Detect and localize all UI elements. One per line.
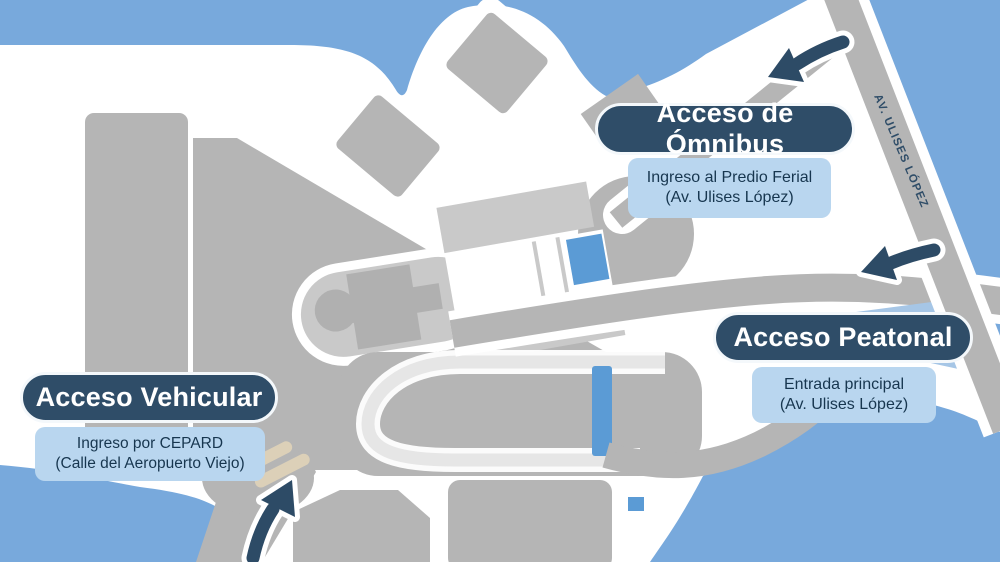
small-blue-bottom — [628, 497, 644, 511]
vehicular-info-line2: (Calle del Aeropuerto Viejo) — [55, 454, 244, 474]
omnibus-info-line1: Ingreso al Predio Ferial — [647, 168, 812, 188]
peatonal-info-line1: Entrada principal — [784, 375, 904, 395]
omnibus-title-pill: Acceso de Ómnibus — [595, 103, 855, 155]
access-map-infographic: AV. ULISES LÓPEZ Acceso de Ómnibus Ingre… — [0, 0, 1000, 562]
peatonal-info-line2: (Av. Ulises López) — [780, 395, 908, 415]
peatonal-title-pill: Acceso Peatonal — [713, 312, 973, 363]
blue-grandstand — [592, 366, 612, 456]
omnibus-info-line2: (Av. Ulises López) — [665, 188, 793, 208]
vehicular-info-line1: Ingreso por CEPARD — [77, 434, 223, 454]
peatonal-info-box: Entrada principal (Av. Ulises López) — [752, 367, 936, 423]
vehicular-info-box: Ingreso por CEPARD (Calle del Aeropuerto… — [35, 427, 265, 481]
bottom-building-rect — [448, 480, 612, 562]
omnibus-info-box: Ingreso al Predio Ferial (Av. Ulises Lóp… — [628, 158, 831, 218]
vehicular-title-pill: Acceso Vehicular — [20, 372, 278, 423]
